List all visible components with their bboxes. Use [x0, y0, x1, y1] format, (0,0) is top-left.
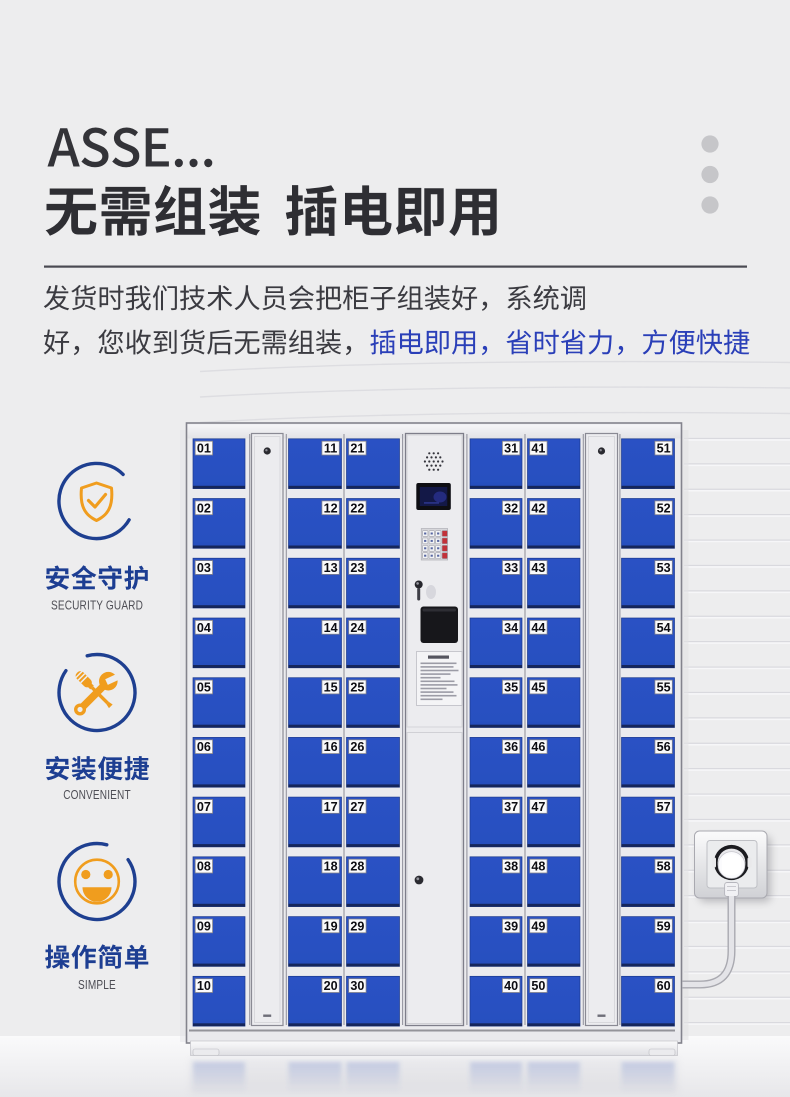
svg-text:08: 08: [197, 860, 211, 874]
svg-text:24: 24: [350, 621, 364, 635]
svg-text:23: 23: [350, 561, 364, 575]
svg-text:33: 33: [504, 561, 518, 575]
svg-text:43: 43: [531, 561, 545, 575]
svg-text:44: 44: [531, 621, 545, 635]
svg-text:42: 42: [531, 501, 545, 515]
svg-text:10: 10: [197, 979, 211, 993]
svg-text:07: 07: [197, 800, 211, 814]
svg-text:50: 50: [531, 979, 545, 993]
svg-text:12: 12: [324, 501, 338, 515]
svg-text:51: 51: [657, 442, 671, 456]
svg-text:59: 59: [657, 919, 671, 933]
svg-text:13: 13: [324, 561, 338, 575]
svg-text:35: 35: [504, 681, 518, 695]
svg-text:22: 22: [350, 501, 364, 515]
svg-text:26: 26: [350, 740, 364, 754]
svg-text:20: 20: [324, 979, 338, 993]
svg-text:01: 01: [197, 442, 211, 456]
svg-text:53: 53: [657, 561, 671, 575]
svg-text:SIMPLE: SIMPLE: [78, 979, 116, 992]
svg-text:46: 46: [531, 740, 545, 754]
svg-text:56: 56: [657, 740, 671, 754]
svg-text:52: 52: [657, 501, 671, 515]
svg-text:37: 37: [504, 800, 518, 814]
svg-text:16: 16: [324, 740, 338, 754]
svg-text:39: 39: [504, 919, 518, 933]
svg-text:40: 40: [504, 979, 518, 993]
svg-text:41: 41: [531, 442, 545, 456]
svg-text:09: 09: [197, 919, 211, 933]
svg-text:18: 18: [324, 860, 338, 874]
svg-text:55: 55: [657, 681, 671, 695]
svg-text:21: 21: [350, 442, 364, 456]
svg-text:04: 04: [197, 621, 211, 635]
svg-text:31: 31: [504, 442, 518, 456]
svg-text:19: 19: [324, 919, 338, 933]
svg-text:32: 32: [504, 501, 518, 515]
svg-text:49: 49: [531, 919, 545, 933]
svg-text:45: 45: [531, 681, 545, 695]
svg-text:CONVENIENT: CONVENIENT: [63, 789, 131, 802]
svg-text:15: 15: [324, 681, 338, 695]
svg-text:29: 29: [350, 919, 364, 933]
svg-text:25: 25: [350, 681, 364, 695]
svg-text:58: 58: [657, 860, 671, 874]
svg-text:14: 14: [324, 621, 338, 635]
svg-text:05: 05: [197, 681, 211, 695]
svg-text:11: 11: [324, 442, 337, 456]
svg-text:57: 57: [657, 800, 671, 814]
svg-text:17: 17: [324, 800, 338, 814]
svg-text:34: 34: [504, 621, 518, 635]
svg-text:60: 60: [657, 979, 671, 993]
svg-text:27: 27: [350, 800, 364, 814]
svg-text:SECURITY GUARD: SECURITY GUARD: [51, 600, 143, 613]
svg-text:02: 02: [197, 501, 211, 515]
svg-text:38: 38: [504, 860, 518, 874]
svg-text:03: 03: [197, 561, 211, 575]
svg-text:54: 54: [657, 621, 671, 635]
svg-text:48: 48: [531, 860, 545, 874]
svg-text:28: 28: [350, 860, 364, 874]
svg-text:47: 47: [531, 800, 545, 814]
svg-text:06: 06: [197, 740, 211, 754]
svg-text:36: 36: [504, 740, 518, 754]
svg-text:30: 30: [350, 979, 364, 993]
